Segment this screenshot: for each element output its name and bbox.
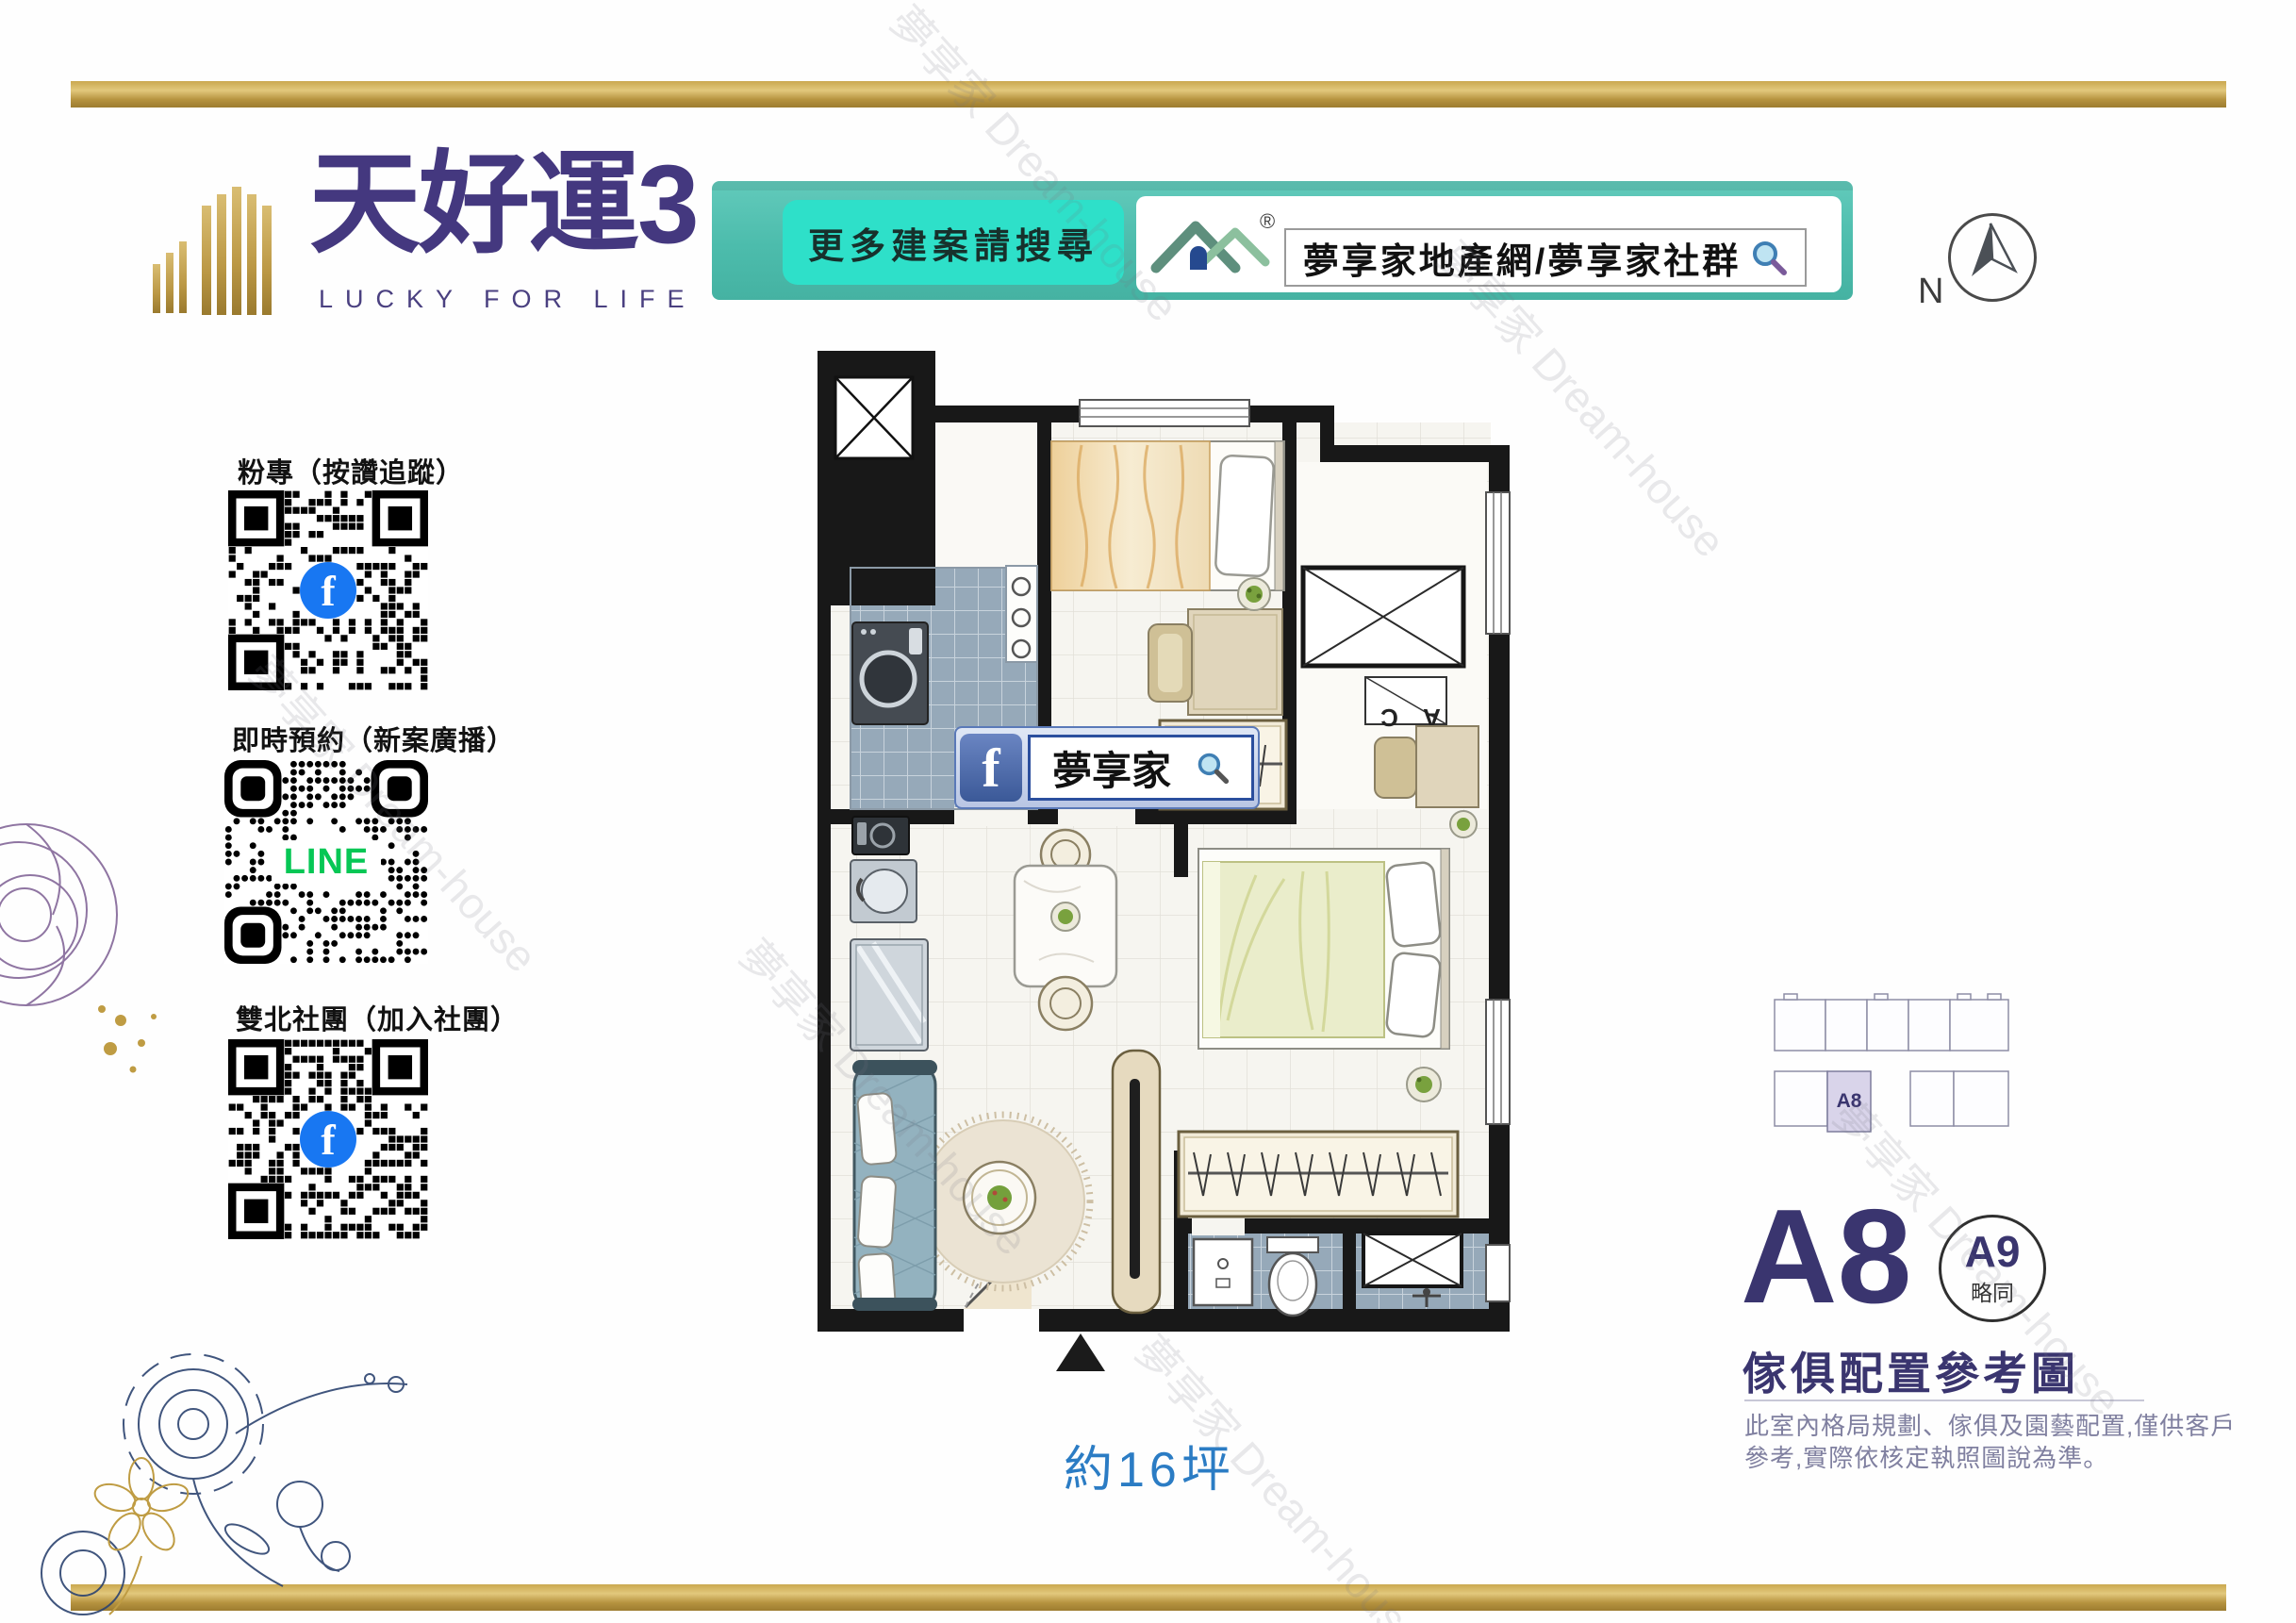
search-input: 夢享家地產網/夢享家社群 bbox=[1284, 228, 1807, 287]
facebook-icon: f bbox=[300, 562, 356, 619]
disclaimer-line-1: 此室內格局規劃、傢俱及園藝配置,僅供客戶 bbox=[1744, 1407, 2236, 1442]
key-plan: A8 bbox=[1769, 986, 2016, 1135]
navy-flowers bbox=[41, 1354, 407, 1615]
project-title: 天好運3 bbox=[309, 149, 698, 260]
flyer-page: 夢享家 Dream-house 夢享家 Dream-house 夢享家 Drea… bbox=[0, 0, 2296, 1623]
gold-top-bar bbox=[71, 81, 2226, 108]
qr-title-booking: 即時預約（新案廣播） bbox=[232, 719, 515, 758]
area-note: 約16坪 bbox=[1064, 1430, 1235, 1500]
facebook-icon: f bbox=[960, 734, 1022, 802]
unit-code: A8 bbox=[1741, 1190, 1912, 1324]
plan-caption: 傢俱配置參考圖 bbox=[1743, 1337, 2079, 1402]
registered-mark: ® bbox=[1260, 209, 1275, 234]
elevator-shaft bbox=[835, 377, 913, 458]
dream-house-logo-icon bbox=[1148, 209, 1271, 285]
search-value: 夢享家地產網/夢享家社群 bbox=[1303, 232, 1742, 284]
qr-code-fanpage: f bbox=[228, 490, 428, 690]
project-subtitle: LUCKY FOR LIFE bbox=[319, 285, 697, 314]
search-icon bbox=[1196, 751, 1230, 785]
facebook-search-overlay: f 夢享家 bbox=[954, 726, 1260, 809]
gold-flower bbox=[91, 1458, 191, 1615]
facebook-search-input: 夢享家 bbox=[1028, 735, 1254, 801]
decorative-flowers bbox=[0, 773, 547, 1622]
compass-icon bbox=[1948, 213, 2037, 302]
facebook-search-value: 夢享家 bbox=[1052, 739, 1171, 797]
similar-unit-note: 略同 bbox=[1971, 1275, 2014, 1307]
similar-unit-badge: A9 略同 bbox=[1939, 1215, 2046, 1322]
compass-north-label: N bbox=[1918, 272, 1943, 312]
qr-title-fanpage: 粉專（按讚追蹤） bbox=[238, 451, 464, 490]
disclaimer-line-2: 參考,實際依核定執照圖說為準。 bbox=[1744, 1439, 2108, 1474]
caption-divider bbox=[1744, 1399, 2144, 1401]
gold-building-icon bbox=[151, 166, 316, 319]
similar-unit-code: A9 bbox=[1965, 1230, 2021, 1273]
gold-dots bbox=[98, 1005, 157, 1073]
floor-plan: A C bbox=[813, 351, 1511, 1341]
purple-peony-flower bbox=[0, 824, 117, 1005]
search-prompt: 更多建案請搜尋 bbox=[783, 200, 1124, 285]
search-icon bbox=[1750, 239, 1788, 276]
key-plan-unit-label: A8 bbox=[1837, 1090, 1862, 1112]
